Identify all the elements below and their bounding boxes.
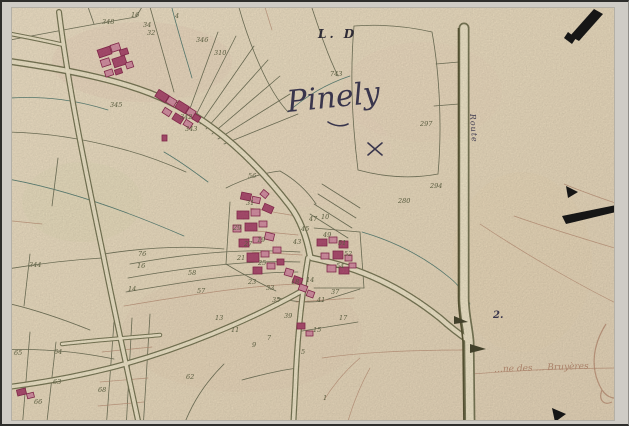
scanned-map-frame: 3481634324346310345342343297294280563129… — [0, 0, 629, 426]
paper-grain-overlay — [11, 7, 615, 421]
cadastral-map: 3481634324346310345342343297294280563129… — [2, 2, 629, 426]
